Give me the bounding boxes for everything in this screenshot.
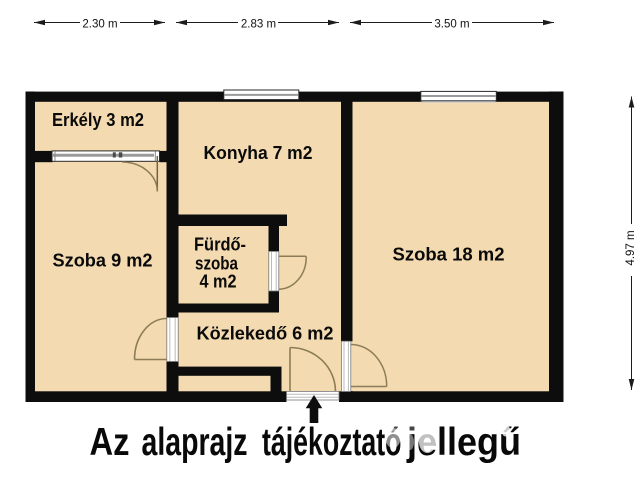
svg-text:Az: Az bbox=[90, 421, 130, 464]
svg-text:4.97 m: 4.97 m bbox=[625, 230, 637, 265]
svg-text:Közlekedő 6 m2: Közlekedő 6 m2 bbox=[197, 324, 334, 344]
svg-text:Szoba 9 m2: Szoba 9 m2 bbox=[53, 251, 153, 271]
svg-text:tájékoztató: tájékoztató bbox=[262, 421, 402, 464]
svg-text:3.50 m: 3.50 m bbox=[434, 18, 469, 30]
svg-text:2.83 m: 2.83 m bbox=[241, 18, 276, 30]
svg-text:Szoba 18 m2: Szoba 18 m2 bbox=[393, 245, 505, 265]
svg-text:szoba: szoba bbox=[195, 254, 239, 274]
svg-text:2.30 m: 2.30 m bbox=[82, 18, 117, 30]
svg-text:alaprajz: alaprajz bbox=[142, 421, 248, 464]
svg-text:Fürdő-: Fürdő- bbox=[194, 235, 246, 255]
svg-text:Konyha 7 m2: Konyha 7 m2 bbox=[204, 143, 313, 163]
svg-text:4 m2: 4 m2 bbox=[200, 272, 237, 292]
svg-text:Erkély 3 m2: Erkély 3 m2 bbox=[52, 110, 144, 130]
